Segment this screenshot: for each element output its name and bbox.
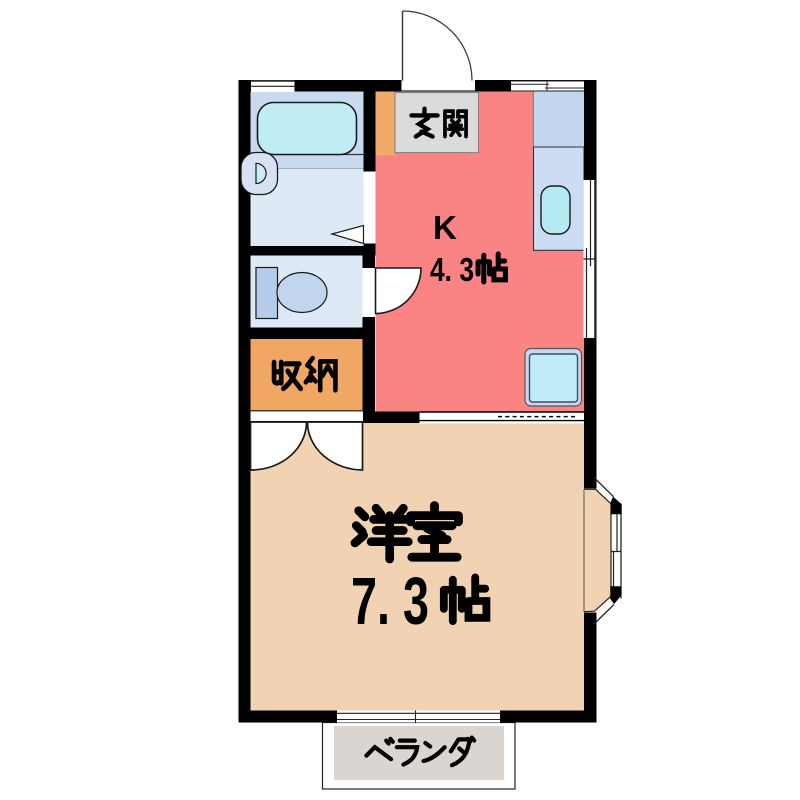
svg-text:7. 3: 7. 3 [351, 564, 429, 639]
svg-text:4. 3: 4. 3 [430, 251, 474, 288]
svg-text:K: K [433, 209, 457, 246]
